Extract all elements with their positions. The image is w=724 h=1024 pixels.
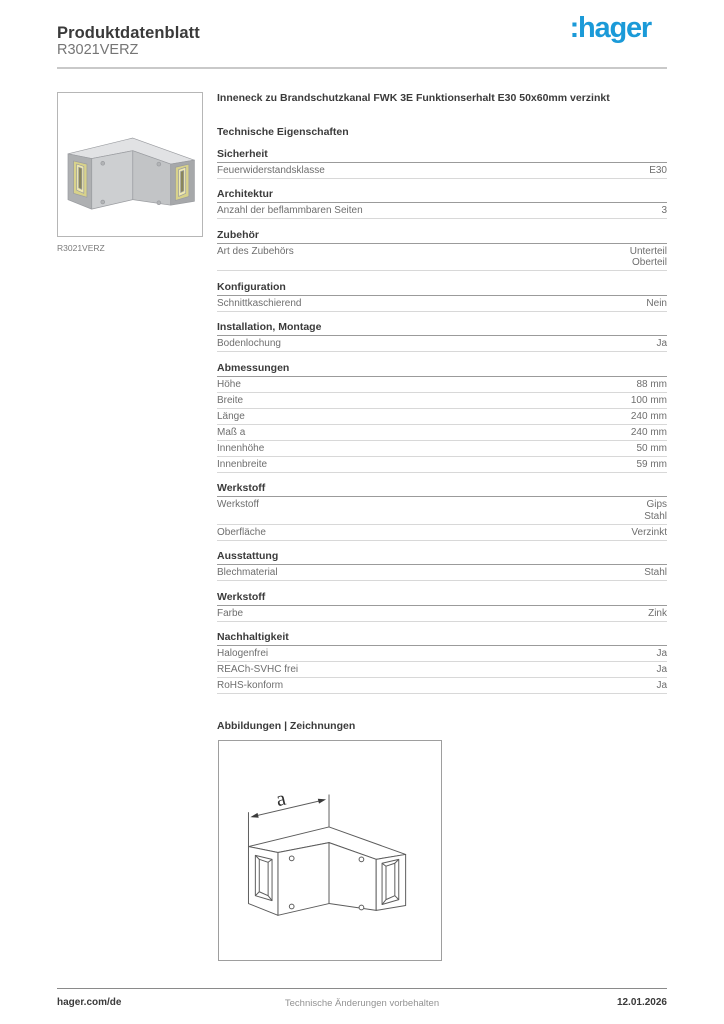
row-label: Oberfläche <box>217 527 266 539</box>
table-row: Maß a 240 mm <box>217 425 667 441</box>
table-row: RoHS-konform Ja <box>217 678 667 694</box>
table-row: Halogenfrei Ja <box>217 646 667 662</box>
product-id: R3021VERZ <box>57 42 138 58</box>
row-label: Anzahl der beflammbaren Seiten <box>217 205 363 217</box>
table-row: Anzahl der beflammbaren Seiten 3 <box>217 203 667 219</box>
row-label: Farbe <box>217 608 243 620</box>
section-abmessungen: Abmessungen Höhe 88 mm Breite 100 mm Län… <box>217 362 667 473</box>
table-row: Bodenlochung Ja <box>217 336 667 352</box>
row-label: RoHS-konform <box>217 680 283 692</box>
row-value: Zink <box>648 608 667 620</box>
section-konfiguration: Konfiguration Schnittkaschierend Nein <box>217 281 667 312</box>
row-label: Feuerwiderstandsklasse <box>217 165 325 177</box>
section-installation-montage: Installation, Montage Bodenlochung Ja <box>217 321 667 352</box>
section-title: Konfiguration <box>217 281 667 296</box>
section-title: Nachhaltigkeit <box>217 631 667 646</box>
corner-piece-drawing: a <box>219 741 441 960</box>
section-title: Abmessungen <box>217 362 667 377</box>
section-nachhaltigkeit: Nachhaltigkeit Halogenfrei Ja REACh-SVHC… <box>217 631 667 694</box>
row-value: Nein <box>646 298 667 310</box>
row-value: Unterteil Oberteil <box>630 246 667 269</box>
section-title: Sicherheit <box>217 148 667 163</box>
row-value: 50 mm <box>636 443 667 455</box>
product-title: Inneneck zu Brandschutzkanal FWK 3E Funk… <box>217 92 667 105</box>
section-werkstoff-2: Werkstoff Farbe Zink <box>217 591 667 622</box>
main-content: Inneneck zu Brandschutzkanal FWK 3E Funk… <box>217 92 667 961</box>
row-label: Breite <box>217 395 243 407</box>
row-label: Bodenlochung <box>217 338 281 350</box>
section-title: Architektur <box>217 188 667 203</box>
datasheet-page: Produktdatenblatt R3021VERZ :hager <box>0 0 724 1024</box>
row-label: Schnittkaschierend <box>217 298 302 310</box>
section-title: Werkstoff <box>217 482 667 497</box>
drawings-heading: Abbildungen | Zeichnungen <box>217 720 667 732</box>
row-label: Blechmaterial <box>217 567 278 579</box>
dimension-a-label: a <box>274 788 288 811</box>
table-row: Oberfläche Verzinkt <box>217 525 667 541</box>
section-title: Ausstattung <box>217 550 667 565</box>
technical-drawing: a <box>218 740 442 961</box>
table-row: Farbe Zink <box>217 606 667 622</box>
product-photo-render <box>58 93 202 236</box>
row-label: Werkstoff <box>217 499 259 511</box>
row-value: Ja <box>656 338 667 350</box>
row-value: 59 mm <box>636 459 667 471</box>
footer-divider <box>57 988 667 989</box>
row-value: 240 mm <box>631 427 667 439</box>
product-image-caption: R3021VERZ <box>57 243 105 253</box>
table-row: Feuerwiderstandsklasse E30 <box>217 163 667 179</box>
table-row: Blechmaterial Stahl <box>217 565 667 581</box>
row-label: Innenbreite <box>217 459 267 471</box>
product-image <box>57 92 203 237</box>
table-row: REACh-SVHC frei Ja <box>217 662 667 678</box>
table-row: Schnittkaschierend Nein <box>217 296 667 312</box>
row-label: Halogenfrei <box>217 648 268 660</box>
row-value: 240 mm <box>631 411 667 423</box>
section-ausstattung: Ausstattung Blechmaterial Stahl <box>217 550 667 581</box>
document-title: Produktdatenblatt <box>57 24 200 43</box>
row-value: Ja <box>656 648 667 660</box>
row-label: Innenhöhe <box>217 443 264 455</box>
section-title: Werkstoff <box>217 591 667 606</box>
row-label: Maß a <box>217 427 245 439</box>
row-value: 88 mm <box>636 379 667 391</box>
table-row: Innenhöhe 50 mm <box>217 441 667 457</box>
row-label: Höhe <box>217 379 241 391</box>
hager-logo: :hager <box>570 12 651 45</box>
table-row: Länge 240 mm <box>217 409 667 425</box>
row-label: Länge <box>217 411 245 423</box>
row-value: E30 <box>649 165 667 177</box>
table-row: Innenbreite 59 mm <box>217 457 667 473</box>
table-row: Höhe 88 mm <box>217 377 667 393</box>
row-value: Ja <box>656 680 667 692</box>
table-row: Breite 100 mm <box>217 393 667 409</box>
row-label: REACh-SVHC frei <box>217 664 298 676</box>
header-divider <box>57 67 667 69</box>
footer-date: 12.01.2026 <box>617 997 667 1008</box>
row-value: Gips Stahl <box>644 499 667 522</box>
row-value: 3 <box>661 205 667 217</box>
table-row: Werkstoff Gips Stahl <box>217 497 667 525</box>
footer-disclaimer: Technische Änderungen vorbehalten <box>0 998 724 1009</box>
row-value: 100 mm <box>631 395 667 407</box>
row-label: Art des Zubehörs <box>217 246 294 258</box>
tech-properties-heading: Technische Eigenschaften <box>217 126 667 138</box>
row-value: Verzinkt <box>631 527 667 539</box>
row-value: Ja <box>656 664 667 676</box>
section-zubehoer: Zubehör Art des Zubehörs Unterteil Obert… <box>217 229 667 272</box>
section-werkstoff-1: Werkstoff Werkstoff Gips Stahl Oberfläch… <box>217 482 667 541</box>
section-title: Installation, Montage <box>217 321 667 336</box>
section-architektur: Architektur Anzahl der beflammbaren Seit… <box>217 188 667 219</box>
section-sicherheit: Sicherheit Feuerwiderstandsklasse E30 <box>217 148 667 179</box>
table-row: Art des Zubehörs Unterteil Oberteil <box>217 244 667 272</box>
section-title: Zubehör <box>217 229 667 244</box>
row-value: Stahl <box>644 567 667 579</box>
